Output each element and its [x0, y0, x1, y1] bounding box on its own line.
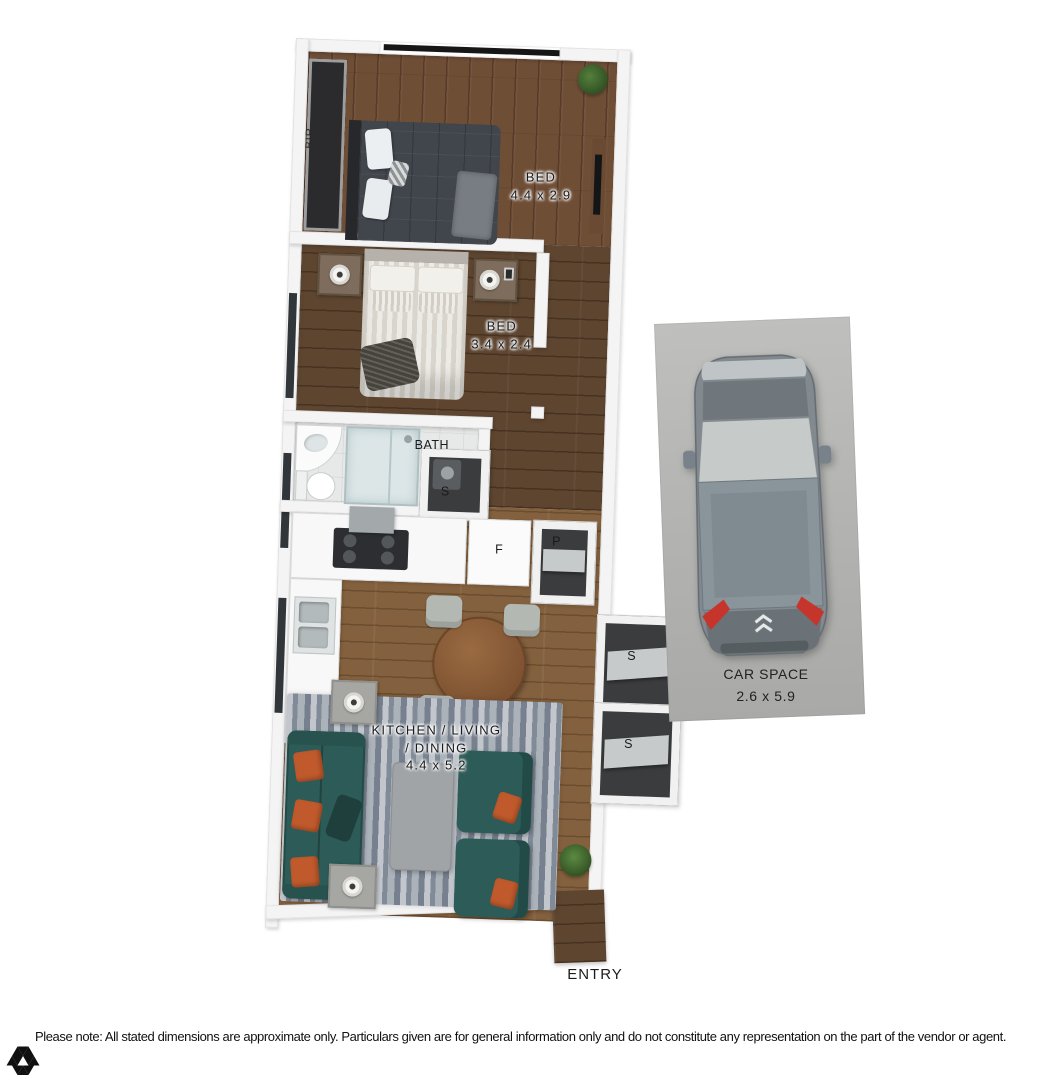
side-table	[330, 680, 378, 726]
entry-label: ENTRY	[545, 966, 645, 983]
dining-chair	[426, 595, 463, 628]
floor-plan-page: BIR BED 4.4 x 2.9	[0, 0, 1041, 1080]
sofa-throw	[324, 793, 363, 843]
pillow-white	[362, 177, 393, 220]
window-glass	[384, 44, 560, 56]
cushion-orange	[293, 749, 325, 783]
disclaimer-text: Please note: All stated dimensions are a…	[0, 1029, 1041, 1044]
pillow-striped	[373, 291, 412, 312]
cushion-orange	[290, 856, 320, 888]
car-top-view	[679, 349, 839, 662]
pantry-shelf	[542, 549, 585, 573]
pillow-white	[417, 266, 464, 294]
bed1-label: BED 4.4 x 2.9	[481, 169, 601, 204]
cushion-orange	[489, 877, 519, 910]
bath-storage-label: S	[420, 483, 470, 500]
wall	[588, 786, 605, 906]
table-lamp	[329, 264, 350, 285]
side-table	[328, 864, 378, 910]
dining-chair	[503, 604, 540, 637]
pillow-striped	[418, 292, 457, 313]
cooktop	[333, 528, 409, 571]
pillow-white	[364, 128, 393, 170]
bed2-label: BED 3.4 x 2.4	[442, 317, 562, 352]
car-space: CAR SPACE 2.6 x 5.9	[654, 316, 865, 721]
fridge-label: F	[474, 541, 524, 558]
cushion-orange	[290, 799, 323, 833]
wall	[531, 406, 544, 418]
car-space-label: CAR SPACE 2.6 x 5.9	[668, 664, 864, 707]
storage-bottom-label: S	[604, 736, 654, 753]
storage-cupboard	[591, 703, 680, 806]
pantry-label: P	[534, 533, 580, 550]
kitchen-living-dining-label: KITCHEN / LIVING / DINING 4.4 x 5.2	[336, 721, 536, 774]
burner	[381, 535, 394, 548]
coffee-table	[389, 762, 455, 872]
burner	[343, 534, 356, 547]
basin-bowl	[302, 432, 329, 454]
table-lamp	[479, 270, 500, 291]
entry-step	[552, 890, 606, 964]
pillow-white	[369, 265, 416, 293]
storage-top-label: S	[607, 648, 657, 665]
rangehood	[349, 506, 395, 534]
washer-door	[441, 466, 454, 479]
kitchen-sink	[293, 596, 337, 654]
window-strip	[274, 598, 286, 713]
bedside-table	[473, 258, 518, 302]
sink-basin	[299, 601, 330, 623]
sink-basin	[298, 626, 329, 648]
burner	[381, 551, 394, 564]
window-strip	[285, 293, 297, 398]
triangle-mosaic-logo	[6, 1046, 40, 1076]
burner	[343, 550, 356, 563]
bedside-table	[317, 253, 362, 297]
picture-frame	[504, 267, 514, 280]
bir-label: BIR	[302, 108, 319, 168]
table-lamp	[344, 692, 365, 713]
apartment-floor-plan: BIR BED 4.4 x 2.9	[262, 38, 695, 1011]
double-bed-dark	[345, 120, 501, 245]
armchair	[453, 838, 530, 919]
bath-label: BATH	[392, 437, 472, 454]
cushion-orange	[492, 791, 523, 825]
toilet-bowl	[306, 472, 336, 501]
table-lamp	[342, 876, 363, 897]
toilet	[295, 470, 336, 499]
